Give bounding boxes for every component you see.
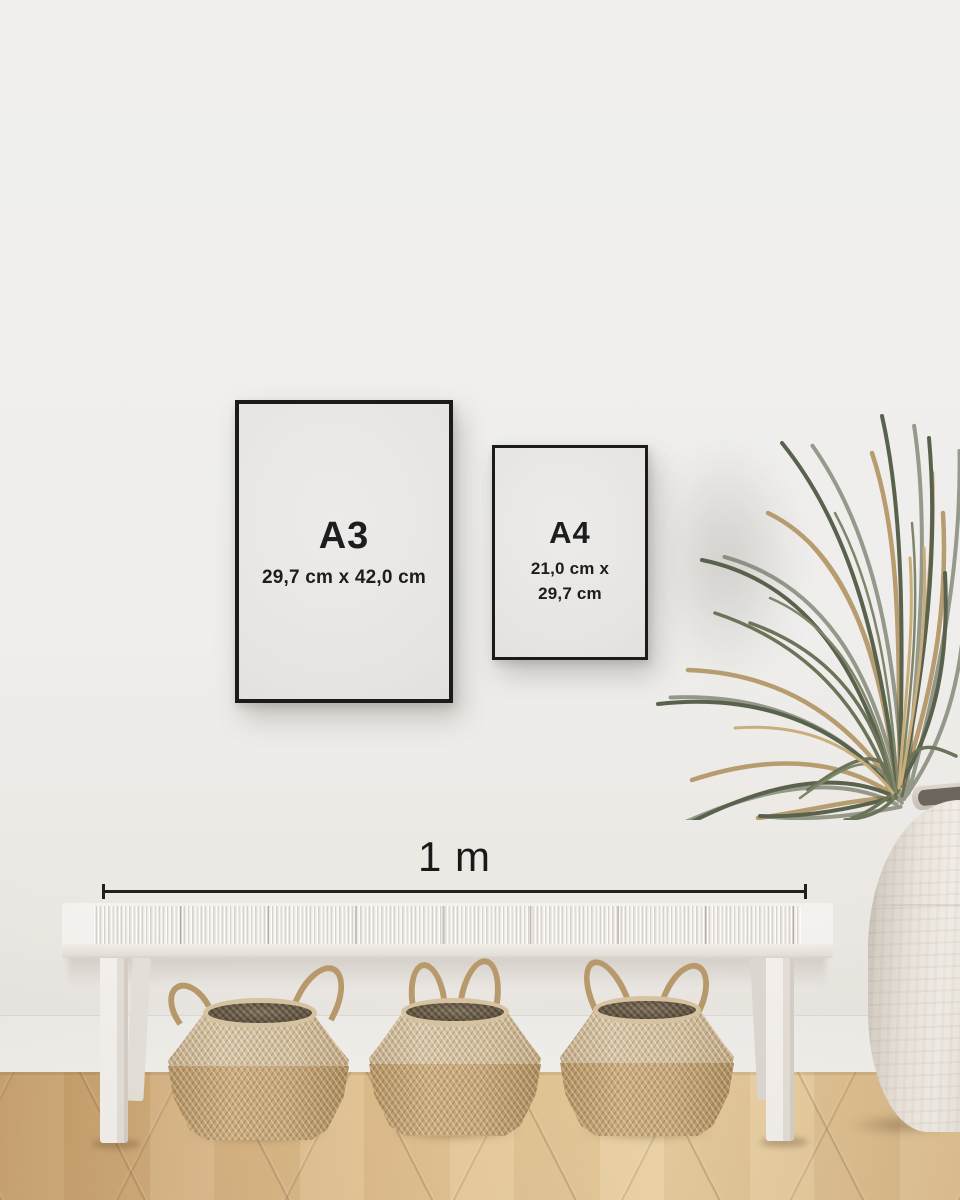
bench-leg: [100, 955, 128, 1143]
frame-a4-paper: A4 21,0 cm x 29,7 cm: [495, 448, 645, 657]
ceramic-urn: [828, 780, 960, 1142]
frame-a4: A4 21,0 cm x 29,7 cm: [492, 445, 648, 660]
frame-a4-dimensions: 21,0 cm x 29,7 cm: [531, 557, 609, 606]
frame-a4-dimensions-line1: 21,0 cm x: [531, 557, 609, 582]
bench-weave-seams: [94, 906, 801, 945]
scale-bar-label: 1 m: [102, 833, 807, 881]
bench-front-rail: [62, 944, 833, 958]
frame-a3-size-label: A3: [319, 515, 370, 558]
basket-rim: [401, 998, 509, 1026]
basket-body-lower: [369, 1064, 541, 1136]
seagrass-basket: [556, 962, 738, 1140]
basket-body-lower: [560, 1063, 734, 1136]
basket-rim: [203, 998, 317, 1028]
bench-leg: [766, 955, 794, 1141]
basket-body-lower: [168, 1066, 349, 1140]
frame-a4-size-label: A4: [549, 515, 591, 551]
size-guide-scene: A3 29,7 cm x 42,0 cm A4 21,0 cm x 29,7 c…: [0, 0, 960, 1200]
seagrass-basket: [163, 962, 353, 1142]
basket-rim: [593, 996, 701, 1024]
frame-a4-dimensions-line2: 29,7 cm: [531, 582, 609, 607]
scale-bar: 1 m: [102, 833, 807, 893]
urn-body: [868, 800, 960, 1132]
seagrass-basket: [365, 964, 545, 1140]
frame-a3: A3 29,7 cm x 42,0 cm: [235, 400, 453, 703]
frame-a3-dimensions: 29,7 cm x 42,0 cm: [262, 567, 426, 589]
bench-seat: [62, 903, 833, 958]
scale-bar-line: [102, 890, 807, 893]
frame-a3-paper: A3 29,7 cm x 42,0 cm: [239, 404, 449, 699]
palm-plant: [640, 328, 960, 820]
